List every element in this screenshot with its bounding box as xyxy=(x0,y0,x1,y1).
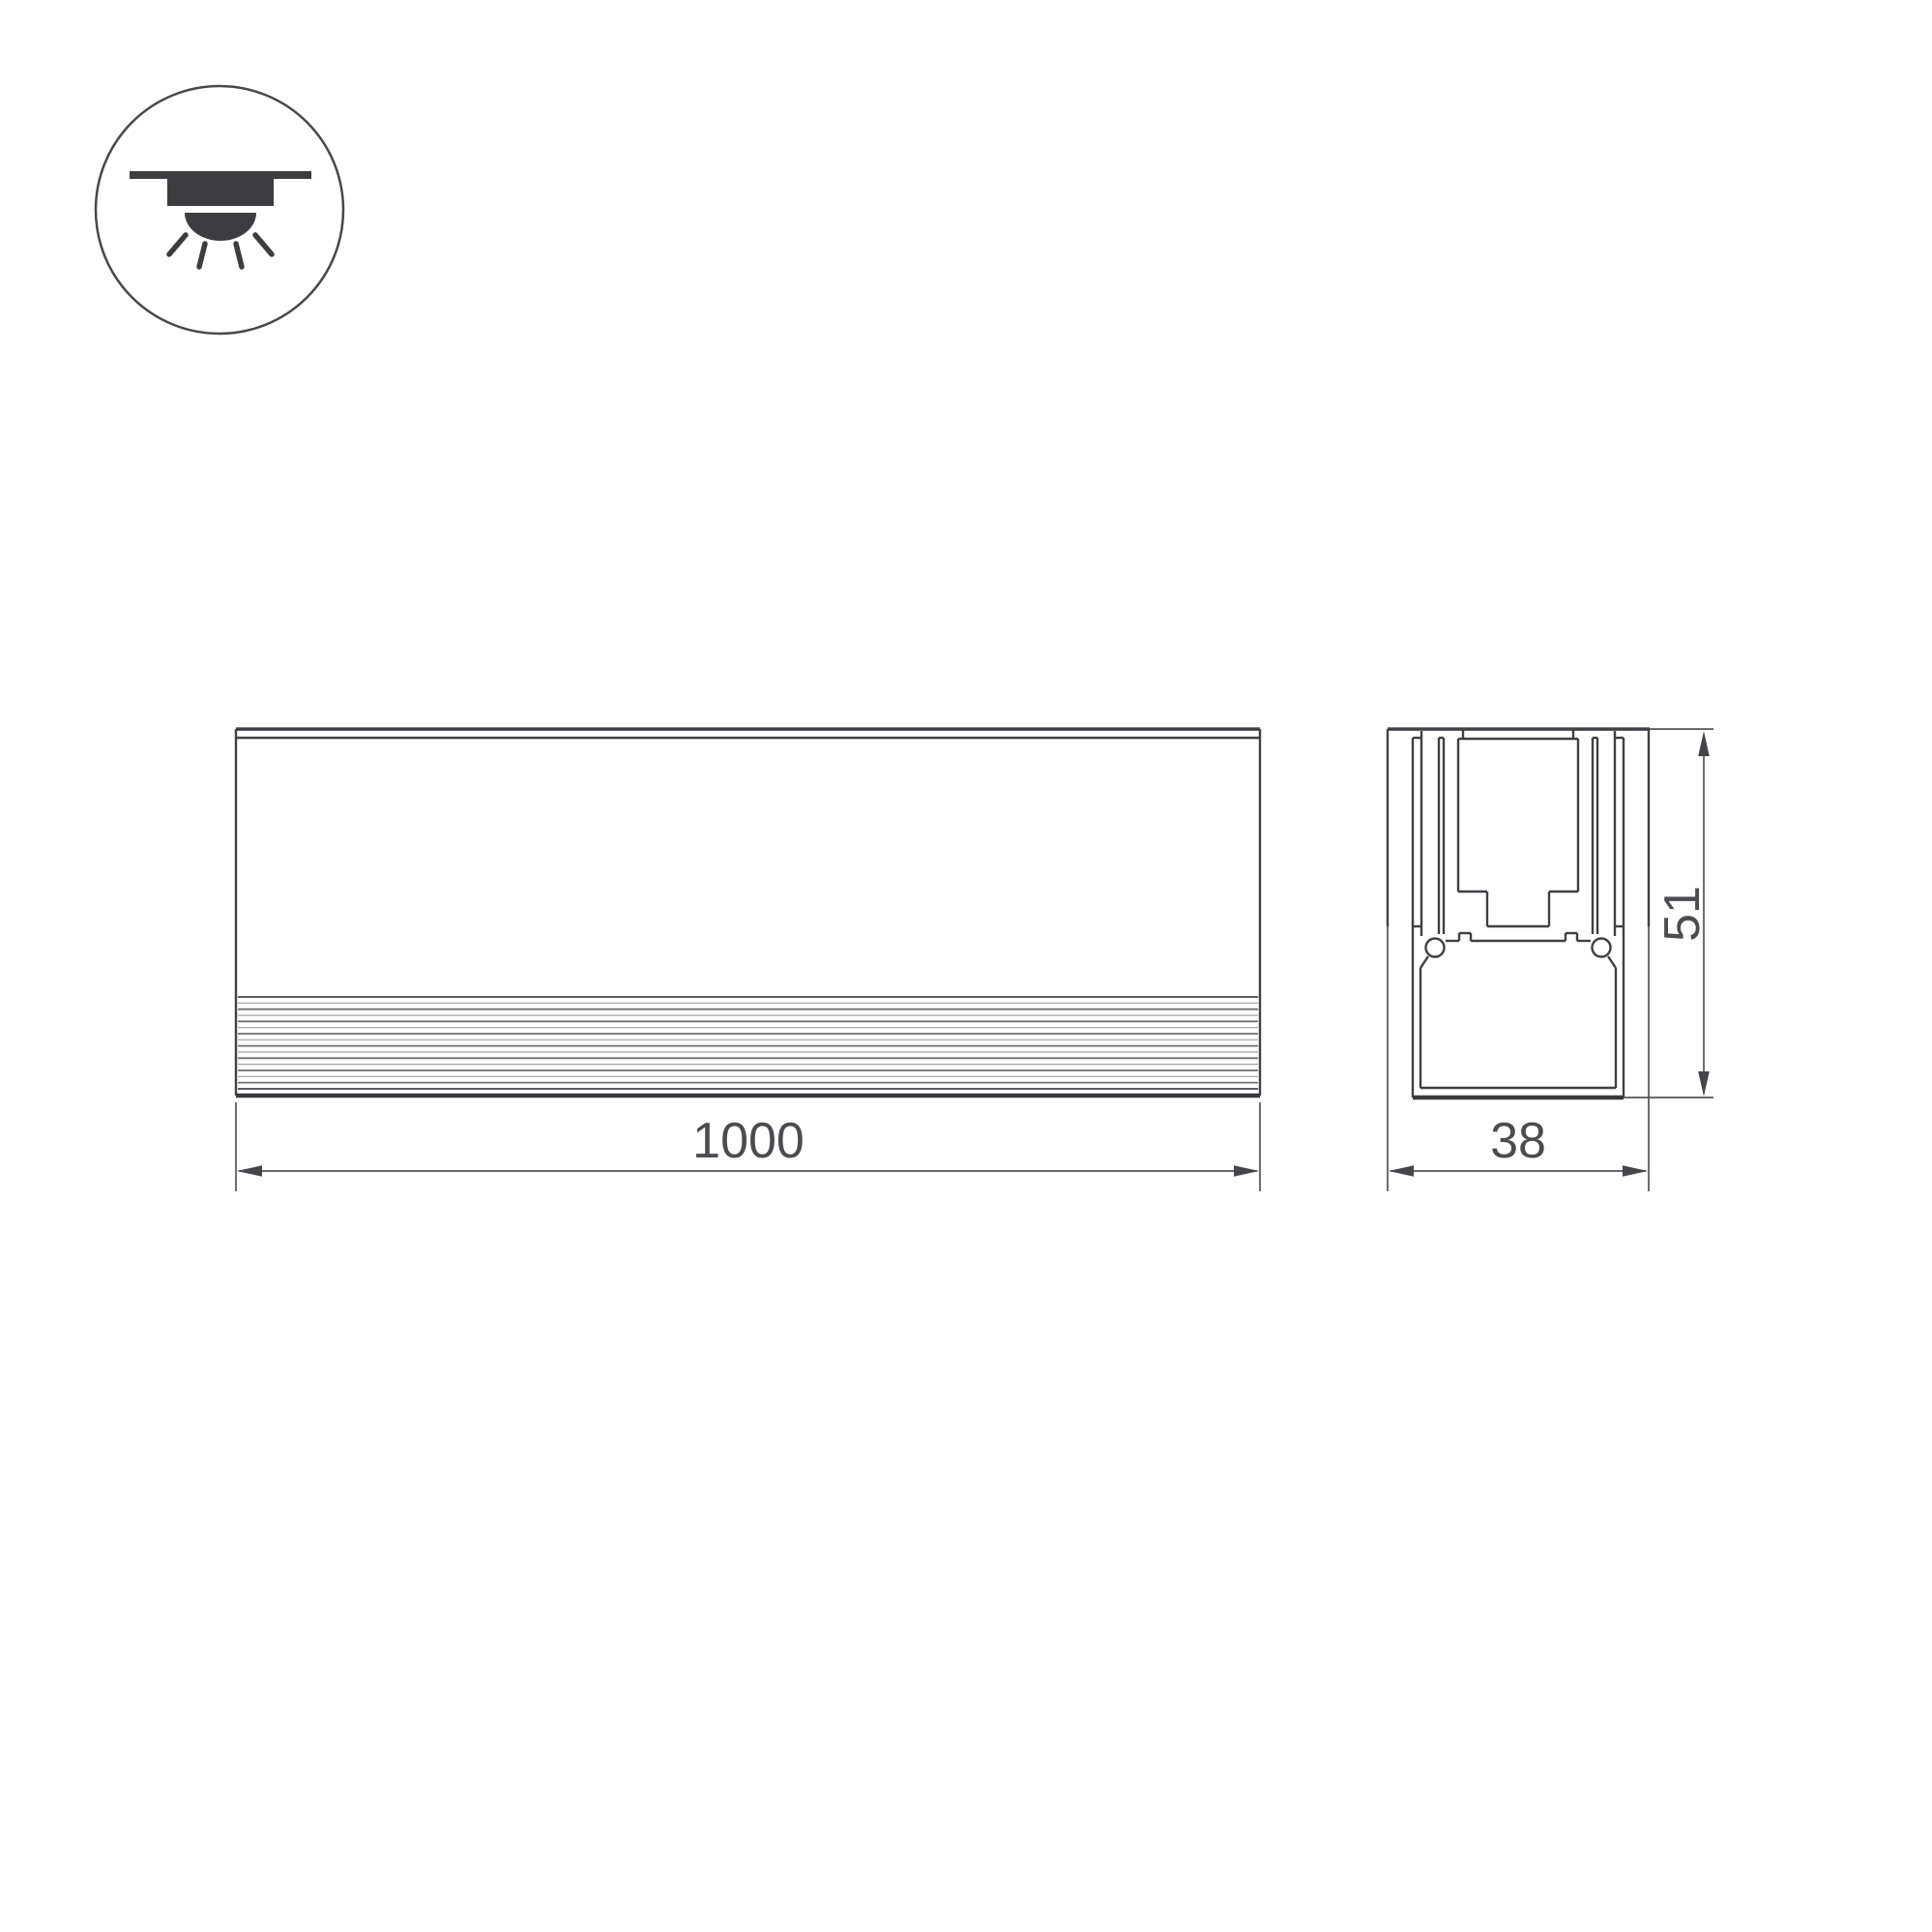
width-label: 38 xyxy=(1490,1113,1546,1169)
icon-ray-2 xyxy=(199,244,205,267)
icon-circle xyxy=(96,86,343,334)
clip-groove-left xyxy=(1426,939,1445,957)
icon-ray-4 xyxy=(255,235,272,254)
arrow-down-icon xyxy=(1698,1071,1710,1097)
recessed-downlight-icon xyxy=(96,86,343,334)
arrow-right-icon xyxy=(1234,1165,1259,1177)
arrow-left-icon xyxy=(237,1165,262,1177)
arrow-left-icon xyxy=(1389,1165,1414,1177)
clip-groove-right xyxy=(1593,939,1611,957)
icon-fixture-body xyxy=(167,179,274,206)
icon-ceiling-bar xyxy=(130,171,311,179)
drawing-line xyxy=(1608,956,1616,968)
length-label: 1000 xyxy=(692,1113,805,1169)
diffuser-ribs xyxy=(238,997,1258,1089)
icon-light-dome xyxy=(185,213,256,241)
technical-drawing-page: 1000 xyxy=(0,0,1932,1932)
drawing-line xyxy=(1420,956,1428,968)
arrow-right-icon xyxy=(1623,1165,1648,1177)
icon-ray-3 xyxy=(236,244,242,267)
drawing-canvas: 1000 xyxy=(0,0,1932,1932)
height-label: 51 xyxy=(1654,886,1711,942)
dimension-width: 38 xyxy=(1388,926,1649,1191)
icon-ray-1 xyxy=(169,235,186,254)
dimension-length: 1000 xyxy=(236,1102,1260,1191)
dimension-height: 51 xyxy=(1654,731,1711,1097)
arrow-up-icon xyxy=(1698,731,1710,756)
front-view xyxy=(236,729,1260,1096)
